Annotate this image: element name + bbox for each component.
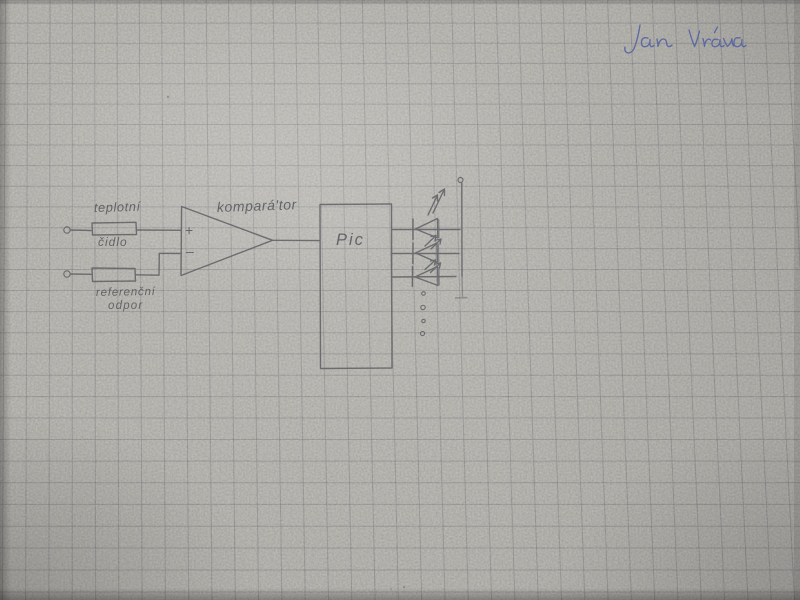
svg-text:Pic: Pic: [336, 231, 365, 249]
svg-text:teplotní: teplotní: [94, 199, 142, 215]
svg-text:+: +: [185, 222, 193, 238]
svg-text:referenční: referenční: [96, 286, 157, 299]
svg-text:odpor: odpor: [108, 300, 143, 312]
svg-text:kompará'tor: kompará'tor: [217, 196, 298, 215]
svg-text:–: –: [186, 243, 194, 259]
svg-text:čidlo: čidlo: [98, 235, 128, 249]
